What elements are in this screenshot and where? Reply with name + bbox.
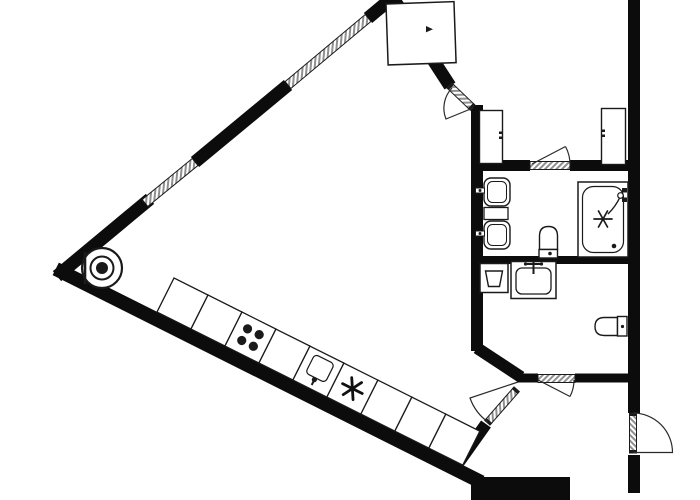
wall-segment [477, 348, 521, 377]
window-icon [285, 15, 371, 89]
corner-column-icon [82, 248, 122, 288]
door-leaf-icon [530, 162, 570, 170]
floor-plan [0, 0, 700, 500]
washbasin-icon [511, 261, 556, 299]
door-leaf-icon [448, 83, 475, 109]
door-leaf-icon [630, 414, 637, 452]
drain-icon [612, 244, 617, 249]
closet-handle-icon [601, 130, 605, 133]
wall-segment [471, 477, 570, 500]
window-icon [142, 159, 198, 207]
wall-segment [628, 0, 640, 413]
wall-segment [62, 272, 475, 479]
door-bathroom [530, 147, 570, 170]
bathtub-icon [578, 182, 628, 257]
door-vestibule-main [470, 382, 520, 426]
closet [602, 109, 626, 165]
entrance-door [629, 413, 673, 454]
washstand-counter [484, 208, 508, 220]
door-leaf-icon [538, 375, 575, 383]
door-leaf-icon [485, 388, 518, 425]
toilet-icon [595, 317, 627, 337]
kitchen-counter [157, 278, 480, 465]
closet-handle-icon [499, 132, 503, 135]
washing-machine-icon [480, 264, 508, 293]
wardrobe [386, 2, 456, 65]
wall-segment [628, 455, 640, 493]
hallway-closets [386, 2, 626, 165]
bathroom [476, 178, 629, 258]
door-wc [538, 375, 575, 397]
toilet-icon [539, 227, 558, 259]
closet-handle-icon [601, 135, 605, 138]
wc-laundry [480, 261, 627, 336]
door-swing-arc [633, 413, 673, 453]
closet-handle-icon [499, 137, 503, 140]
wall-segment [195, 85, 288, 162]
floor-plan-canvas [0, 0, 700, 500]
